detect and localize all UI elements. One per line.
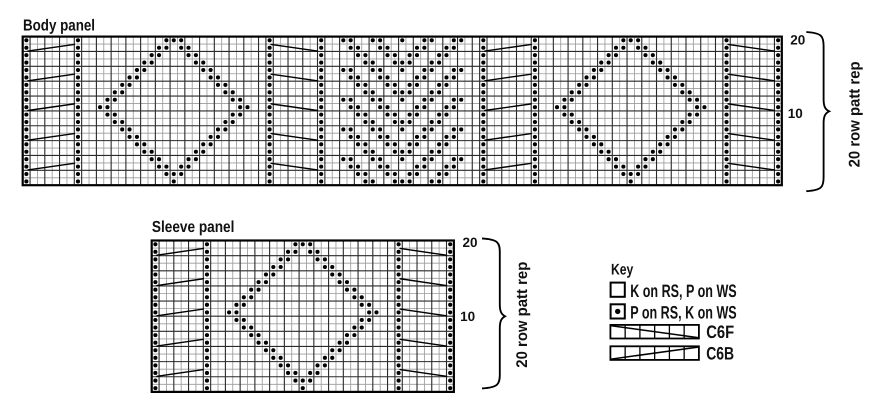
svg-text:P on RS, K on WS: P on RS, K on WS xyxy=(630,302,737,322)
svg-text:Body panel: Body panel xyxy=(23,17,95,34)
svg-text:20 row patt rep: 20 row patt rep xyxy=(847,61,864,167)
svg-text:20: 20 xyxy=(462,235,477,250)
svg-text:K on RS, P on WS: K on RS, P on WS xyxy=(630,281,737,301)
svg-text:Sleeve panel: Sleeve panel xyxy=(152,219,235,236)
svg-text:C6B: C6B xyxy=(706,343,734,363)
svg-text:10: 10 xyxy=(460,309,475,324)
svg-text:C6F: C6F xyxy=(706,322,734,342)
svg-text:20 row patt rep: 20 row patt rep xyxy=(514,262,531,368)
svg-text:Key: Key xyxy=(611,261,634,278)
svg-text:20: 20 xyxy=(790,32,805,47)
svg-text:10: 10 xyxy=(788,106,803,121)
